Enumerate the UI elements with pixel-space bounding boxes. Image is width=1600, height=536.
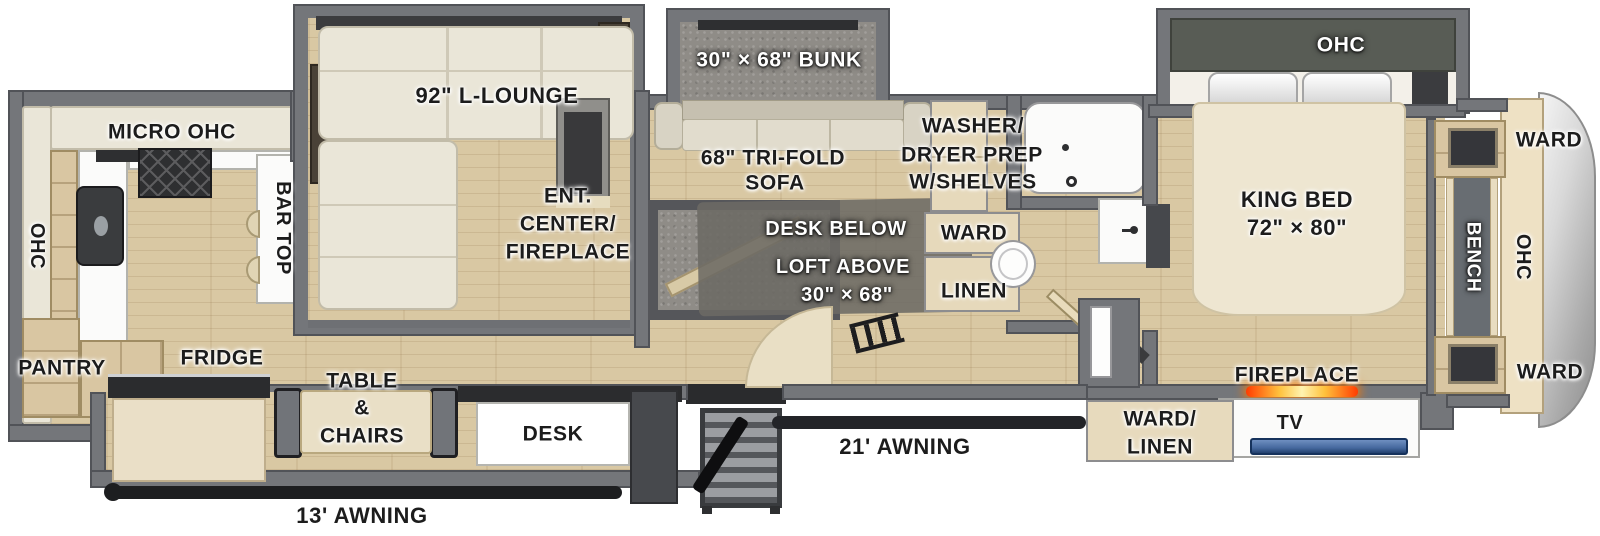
label-loft-above-2: 30" × 68": [801, 285, 893, 305]
rv-floorplan: OHC MICRO OHC BAR TOP PANTRY FRIDGE 92" …: [0, 0, 1600, 536]
fridge-island-body: [112, 398, 266, 482]
label-desk-below: DESK BELOW: [765, 219, 907, 239]
sink-drain: [94, 216, 108, 236]
awning-13-bar: [112, 486, 622, 499]
label-king-bed-1: KING BED: [1241, 189, 1353, 211]
awning-21-bar: [772, 416, 1086, 429]
label-fridge: FRIDGE: [181, 348, 264, 369]
label-table-chairs-1: TABLE: [326, 371, 397, 392]
label-fireplace: FIREPLACE: [1235, 365, 1359, 386]
label-bar-top: BAR TOP: [273, 181, 293, 275]
front-wardrobe-top-door: [1448, 128, 1498, 168]
entertainment-center-screen: [564, 112, 602, 194]
label-washer-1: WASHER/: [922, 116, 1024, 137]
dinette-chair: [430, 388, 458, 458]
label-linen-hall: LINEN: [941, 281, 1007, 302]
label-cap-ohc: OHC: [1513, 234, 1533, 280]
label-tv: TV: [1277, 413, 1304, 433]
label-ward-cap-top: WARD: [1516, 130, 1583, 151]
label-ward-hall: WARD: [941, 223, 1008, 244]
kitchen-cabinet-column: [50, 150, 78, 342]
label-l-lounge: 92" L-LOUNGE: [415, 85, 578, 107]
label-awning-21: 21' AWNING: [839, 436, 970, 458]
label-ward-linen-1: WARD/: [1124, 409, 1197, 430]
label-ward-cap-bottom: WARD: [1517, 362, 1584, 383]
label-trifold-2: SOFA: [745, 173, 805, 194]
lounge-slide-sill: [308, 320, 630, 328]
tv-screen: [1250, 438, 1408, 455]
label-loft-above-1: LOFT ABOVE: [776, 257, 910, 277]
label-king-bed-2: 72" × 80": [1247, 217, 1347, 239]
label-bunk: 30" × 68" BUNK: [696, 50, 861, 71]
l-lounge-sofa-left-section: [318, 140, 458, 310]
bench-rail: [1446, 178, 1454, 336]
label-kitchen-ohc: OHC: [27, 223, 47, 269]
trifold-sofa-back: [682, 100, 904, 120]
front-bottom-connector-wall: [1446, 394, 1510, 408]
label-desk: DESK: [523, 424, 584, 445]
awning-13-end: [104, 483, 122, 501]
label-bench: BENCH: [1464, 222, 1483, 293]
bunk-headboard-trim: [698, 20, 858, 30]
label-bedroom-ohc: OHC: [1317, 35, 1365, 56]
front-top-connector-wall: [1456, 98, 1508, 112]
fireplace-glow: [1246, 386, 1358, 397]
bath-cabinet: [1146, 204, 1170, 268]
label-ent-center-2: CENTER/: [520, 214, 616, 235]
step-foot: [770, 506, 780, 514]
tub-faucet: [1062, 144, 1069, 151]
desk-side-cabinet: [630, 390, 678, 504]
step-foot: [702, 506, 712, 514]
trifold-sofa-arm-left: [654, 102, 684, 150]
label-ent-center-1: ENT.: [544, 186, 592, 207]
dinette-chair: [274, 388, 302, 458]
label-micro-ohc: MICRO OHC: [108, 122, 236, 143]
vanity-faucet-stub: [1122, 229, 1132, 232]
front-wardrobe-bottom-door: [1448, 344, 1498, 384]
cooktop-stove: [138, 148, 212, 198]
label-ent-center-3: FIREPLACE: [506, 242, 630, 263]
range-hood: [96, 150, 138, 162]
bench-rail: [1490, 178, 1498, 336]
label-table-chairs-2: &: [354, 398, 370, 419]
label-washer-3: W/SHELVES: [909, 172, 1037, 193]
bedroom-door-panel: [1090, 306, 1112, 378]
bottom-wall-segment: [782, 384, 1088, 400]
label-pantry: PANTRY: [18, 358, 106, 379]
tub-drain: [1066, 176, 1077, 187]
bedroom-ohc-cabinet: [1170, 18, 1456, 72]
label-ward-linen-2: LINEN: [1127, 437, 1193, 458]
toilet-seat: [998, 248, 1028, 280]
label-trifold-1: 68" TRI-FOLD: [701, 148, 845, 169]
label-awning-13: 13' AWNING: [296, 505, 427, 527]
fridge-island-counter: [108, 374, 270, 398]
label-table-chairs-3: CHAIRS: [320, 426, 404, 447]
label-washer-2: DRYER PREP: [901, 145, 1043, 166]
